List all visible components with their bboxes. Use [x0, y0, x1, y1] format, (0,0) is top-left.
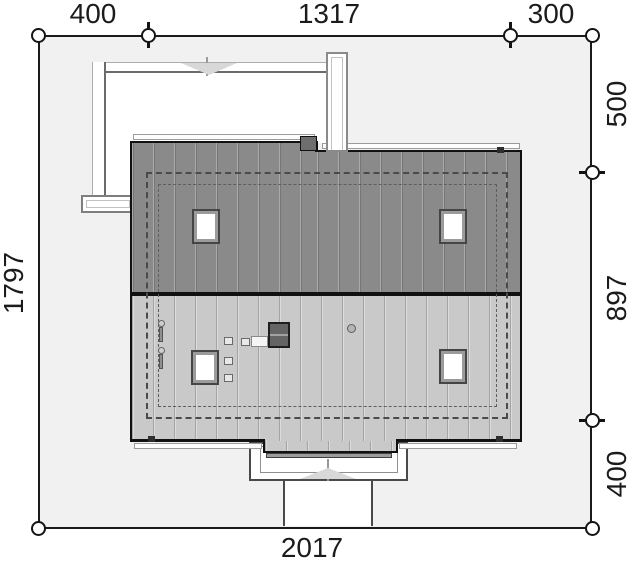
chimney-vent-box [251, 336, 268, 347]
roof-step-corner-block [300, 136, 317, 151]
gutter-bottom-right [399, 443, 517, 449]
dimension-marker-bottom-left [31, 521, 46, 536]
downspout-mark-top-right [497, 147, 504, 153]
roof-vent-square-1 [224, 337, 233, 345]
gutter-top-left [133, 134, 315, 140]
dimension-marker-top-right [585, 28, 600, 43]
dim-label-bottom-2017: 2017 [262, 533, 362, 563]
driveway-paving-side [105, 72, 130, 197]
boundary-wall-strip [326, 52, 348, 152]
dimension-marker-top-1 [141, 28, 156, 43]
roof-vent-square-2 [241, 338, 250, 346]
driveway-paving [105, 72, 327, 143]
walkway-path [283, 481, 373, 526]
dim-label-top-1317: 1317 [279, 0, 379, 29]
dim-label-right-500: 500 [602, 54, 632, 154]
dim-label-left-1797: 1797 [0, 223, 29, 343]
roof-anchor-bar-2 [159, 354, 163, 369]
dimension-marker-top-left [31, 28, 46, 43]
chimney [268, 322, 290, 348]
gate-wall-inner-line [86, 200, 130, 208]
gutter-bottom-left [134, 443, 262, 449]
dim-label-top-400: 400 [43, 0, 143, 29]
roof-vent-round [347, 324, 356, 333]
skylight-window-upper-right [441, 211, 465, 242]
dimension-marker-top-2 [503, 28, 518, 43]
roof-anchor-knob-1 [158, 320, 165, 327]
dimension-marker-right-1 [585, 165, 600, 180]
downspout-mark-bottom-right [496, 436, 503, 442]
roof-anchor-knob-2 [158, 347, 165, 354]
skylight-window-lower-left [193, 352, 217, 383]
gutter-top-right [322, 143, 520, 149]
roof-vent-square-3 [224, 357, 233, 365]
gate-wall-segment [81, 195, 135, 213]
skylight-window-upper-left [194, 211, 218, 242]
roof-eaves-edge-right [396, 439, 522, 442]
porch-gutter-bar [266, 453, 392, 458]
downspout-mark-bottom-left [148, 436, 155, 442]
roof-entrance-overhang [263, 441, 398, 453]
skylight-window-lower-right [441, 351, 465, 382]
dimension-marker-right-2 [585, 413, 600, 428]
fence-left-wall [92, 62, 106, 198]
boundary-wall-inner-line [331, 57, 343, 150]
dimension-marker-bottom-right [585, 521, 600, 536]
roof-anchor-bar-1 [159, 327, 163, 342]
dim-label-right-400: 400 [602, 424, 632, 524]
dim-label-right-897: 897 [602, 248, 632, 348]
roof-vent-square-4 [224, 374, 233, 382]
dim-label-top-300: 300 [501, 0, 601, 29]
site-plan-drawing: 400 1317 300 1797 500 897 400 2017 [0, 0, 634, 567]
